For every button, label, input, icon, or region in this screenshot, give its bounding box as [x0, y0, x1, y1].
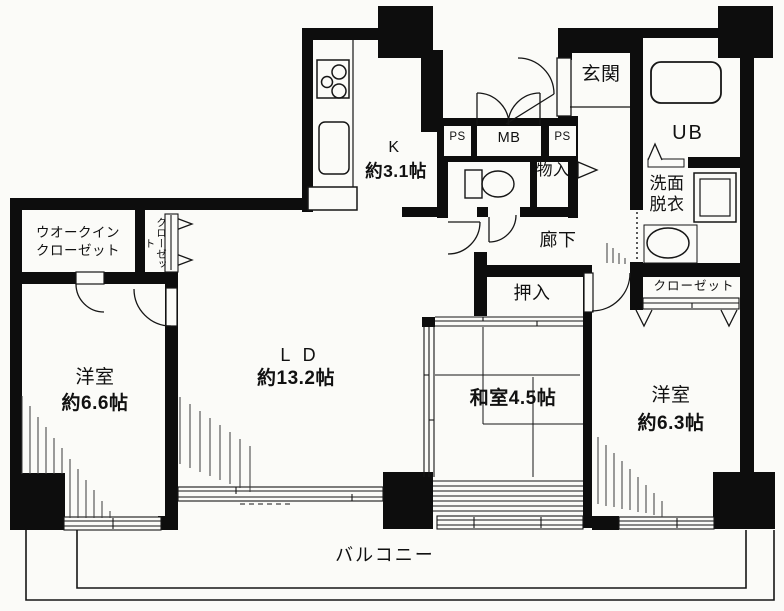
- pillar: [383, 472, 433, 529]
- storage-label-mono-ire: 物入: [534, 162, 572, 180]
- entrance-door-arc-icon: [518, 58, 554, 94]
- room-label-balcony: バルコニー: [330, 545, 440, 566]
- door-arc-icon: [448, 222, 480, 254]
- room-size-western-right: 約6.3帖: [618, 413, 724, 435]
- window-japanese-room: [437, 516, 583, 529]
- kitchen-counter-end: [308, 187, 357, 210]
- washing-machine-icon: [694, 173, 736, 222]
- closet-sliding-doors: [165, 214, 739, 309]
- utility-label-meter-box: MB: [477, 130, 541, 147]
- shutter-stripes: [433, 481, 583, 511]
- walk-in-closet-door: [76, 272, 104, 284]
- window-living: [178, 487, 383, 504]
- door-arc-icon: [76, 284, 104, 312]
- storage-label-closet-column: クローゼット: [142, 215, 166, 271]
- bedroom-right-door: [584, 273, 593, 312]
- closet-hanger-marker-icon: [721, 310, 737, 326]
- room-size-living-dining: 約13.2帖: [250, 368, 342, 390]
- bathtub-icon: [651, 62, 721, 103]
- room-label-kitchen: K: [383, 139, 405, 157]
- pillar: [713, 472, 775, 529]
- bedroom-left-door: [166, 288, 177, 326]
- entrance-door: [557, 58, 571, 116]
- ld-doorway: [448, 207, 477, 217]
- room-label-western-right: 洋室: [640, 385, 702, 407]
- room-label-living-dining: L D: [272, 345, 328, 366]
- room-label-japanese-room: 和室4.5帖: [460, 388, 566, 410]
- toilet-doorway: [488, 207, 520, 217]
- window-bedroom-right: [619, 517, 714, 529]
- utility-label-ps-right: PS: [549, 131, 576, 144]
- kitchen-sink-icon: [319, 122, 349, 174]
- room-label-entrance: 玄関: [570, 64, 632, 86]
- room-label-western-left: 洋室: [70, 367, 120, 389]
- toilet-icon: [465, 170, 514, 198]
- room-label-washroom: 洗面 脱衣: [644, 173, 690, 216]
- floor-plan: 玄関 UB 洗面 脱衣 物入 廊下 押入 クローゼット 和室4.5帖 洋室 約6…: [0, 0, 784, 611]
- room-label-unit-bath: UB: [664, 122, 712, 145]
- walls-layer: [10, 6, 775, 530]
- utility-label-ps-left: PS: [444, 131, 471, 144]
- closet-hanger-marker-icon: [636, 310, 652, 326]
- storage-label-walk-in-closet: ウオークイン クローゼット: [20, 224, 136, 259]
- room-size-western-left: 約6.6帖: [54, 393, 136, 415]
- stove-icon: [317, 60, 349, 98]
- folding-door-marker-icon: [578, 162, 597, 178]
- wash-basin-icon: [644, 225, 697, 263]
- room-size-kitchen: 約3.1帖: [356, 161, 436, 181]
- floor-plan-drawing: [0, 0, 784, 611]
- window-bedroom-left: [64, 517, 161, 530]
- door-arc-icon: [592, 273, 630, 311]
- storage-label-closet-right: クローゼット: [648, 279, 740, 293]
- room-label-hallway: 廊下: [535, 230, 581, 251]
- bath-folding-door-icon: [648, 144, 662, 160]
- bath-door-sill: [648, 159, 684, 167]
- storage-label-oshiire: 押入: [506, 283, 558, 304]
- door-arc-icon: [489, 215, 516, 242]
